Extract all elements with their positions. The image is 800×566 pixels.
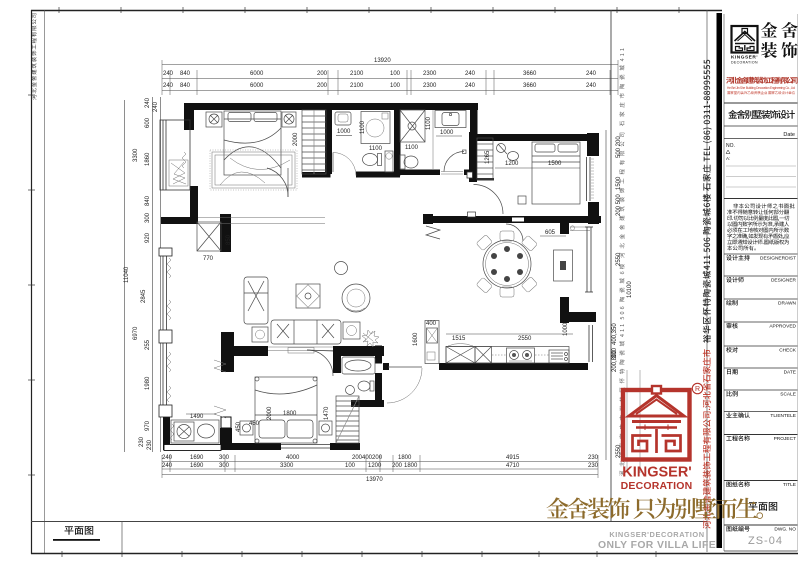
svg-text:CHECK: CHECK bbox=[779, 348, 797, 354]
svg-text:13970: 13970 bbox=[366, 477, 383, 483]
svg-text:1800: 1800 bbox=[283, 411, 297, 417]
svg-text:DRAWN: DRAWN bbox=[778, 301, 796, 307]
svg-text:1000: 1000 bbox=[440, 130, 454, 136]
svg-text:840: 840 bbox=[180, 71, 191, 77]
svg-text:1515: 1515 bbox=[452, 336, 466, 342]
svg-text:240: 240 bbox=[465, 83, 476, 89]
svg-text:2550: 2550 bbox=[518, 336, 532, 342]
svg-text:1100: 1100 bbox=[369, 146, 383, 152]
svg-text:1000: 1000 bbox=[337, 129, 351, 135]
svg-text:3300: 3300 bbox=[133, 148, 139, 162]
svg-text:ZS-04: ZS-04 bbox=[748, 535, 783, 547]
svg-text:605: 605 bbox=[545, 230, 556, 236]
svg-text:1100: 1100 bbox=[405, 145, 419, 151]
svg-text:1500: 1500 bbox=[548, 161, 562, 167]
svg-text:2000: 2000 bbox=[267, 406, 273, 420]
svg-text:DWG. NO: DWG. NO bbox=[774, 527, 796, 533]
svg-text:R: R bbox=[695, 386, 700, 393]
svg-text:200: 200 bbox=[317, 71, 328, 77]
svg-text:230: 230 bbox=[139, 436, 145, 447]
svg-text:1000: 1000 bbox=[563, 322, 569, 336]
svg-text:240: 240 bbox=[162, 455, 173, 461]
svg-text:ONLY FOR VILLA LIFE: ONLY FOR VILLA LIFE bbox=[598, 540, 716, 551]
svg-text:1600: 1600 bbox=[413, 332, 419, 346]
svg-text:100: 100 bbox=[345, 463, 356, 469]
svg-text:840: 840 bbox=[145, 195, 151, 206]
svg-text:4915: 4915 bbox=[506, 455, 520, 461]
svg-text:1200: 1200 bbox=[505, 161, 519, 167]
svg-text:1265: 1265 bbox=[485, 150, 491, 164]
svg-text:1100: 1100 bbox=[426, 116, 432, 130]
svg-text:1860: 1860 bbox=[145, 152, 151, 166]
svg-text:3660: 3660 bbox=[523, 83, 537, 89]
svg-text:255: 255 bbox=[145, 339, 151, 350]
svg-text:DECORATION: DECORATION bbox=[621, 480, 693, 492]
svg-text:300: 300 bbox=[145, 212, 151, 223]
svg-text:240: 240 bbox=[586, 83, 597, 89]
svg-text:4710: 4710 bbox=[506, 463, 520, 469]
svg-text:200: 200 bbox=[317, 83, 328, 89]
svg-text:230: 230 bbox=[147, 439, 153, 450]
svg-text:APPROVED: APPROVED bbox=[769, 324, 796, 330]
svg-text:100: 100 bbox=[390, 71, 401, 77]
svg-text:500 200: 500 200 bbox=[616, 136, 622, 158]
svg-text:13920: 13920 bbox=[374, 58, 391, 64]
svg-text:240: 240 bbox=[153, 101, 159, 112]
svg-text:2000: 2000 bbox=[293, 132, 299, 146]
svg-text:240: 240 bbox=[586, 71, 597, 77]
svg-text:DECORATION: DECORATION bbox=[731, 60, 758, 64]
svg-text:NO.: NO. bbox=[726, 143, 735, 149]
svg-text:100: 100 bbox=[390, 83, 401, 89]
svg-text:1490: 1490 bbox=[190, 414, 204, 420]
svg-text:1690: 1690 bbox=[190, 463, 204, 469]
svg-text:SCALE: SCALE bbox=[780, 392, 796, 398]
svg-text:200 500: 200 500 bbox=[616, 194, 622, 216]
svg-text:2550: 2550 bbox=[616, 252, 622, 266]
svg-text:1100: 1100 bbox=[360, 120, 366, 134]
svg-text:2300: 2300 bbox=[423, 83, 437, 89]
svg-text:200: 200 bbox=[392, 463, 403, 469]
svg-text:3660: 3660 bbox=[523, 71, 537, 77]
svg-text:300: 300 bbox=[219, 463, 230, 469]
svg-text:770: 770 bbox=[203, 256, 214, 262]
svg-text:6970: 6970 bbox=[133, 326, 139, 340]
svg-text:DATE: DATE bbox=[784, 370, 796, 376]
svg-text:920: 920 bbox=[145, 232, 151, 243]
svg-text:10100: 10100 bbox=[627, 281, 633, 298]
svg-text:2100: 2100 bbox=[350, 83, 364, 89]
svg-text:6000: 6000 bbox=[250, 71, 264, 77]
svg-text:240: 240 bbox=[162, 463, 173, 469]
svg-text:1800: 1800 bbox=[404, 463, 418, 469]
svg-text:1800: 1800 bbox=[398, 455, 412, 461]
svg-text:2300: 2300 bbox=[423, 71, 437, 77]
svg-text:230: 230 bbox=[588, 463, 599, 469]
svg-text:1470: 1470 bbox=[324, 406, 330, 420]
svg-text:240: 240 bbox=[145, 97, 151, 108]
svg-text:400: 400 bbox=[426, 321, 437, 327]
svg-text:TITLE: TITLE bbox=[783, 482, 796, 488]
svg-text:A:: A: bbox=[726, 156, 730, 161]
svg-text:840: 840 bbox=[180, 83, 191, 89]
svg-text:200,800: 200,800 bbox=[612, 350, 618, 372]
svg-text:850: 850 bbox=[226, 234, 232, 245]
svg-text:300: 300 bbox=[219, 455, 230, 461]
svg-text:450: 450 bbox=[236, 421, 242, 432]
svg-text:DESIGNER: DESIGNER bbox=[771, 278, 797, 284]
svg-text:1500: 1500 bbox=[616, 176, 622, 190]
svg-text:240: 240 bbox=[163, 71, 174, 77]
svg-text:2100: 2100 bbox=[350, 71, 364, 77]
svg-text:KINGSER'DECORATION: KINGSER'DECORATION bbox=[609, 530, 704, 539]
svg-text:1980: 1980 bbox=[145, 376, 151, 390]
svg-text:200400200: 200400200 bbox=[352, 455, 383, 461]
svg-text:3300: 3300 bbox=[280, 463, 294, 469]
svg-text:11040: 11040 bbox=[124, 266, 130, 283]
svg-text:600: 600 bbox=[145, 117, 151, 128]
svg-text:240: 240 bbox=[465, 71, 476, 77]
svg-text:400,350: 400,350 bbox=[612, 323, 618, 345]
svg-text:970: 970 bbox=[145, 420, 151, 431]
svg-text:230: 230 bbox=[588, 455, 599, 461]
svg-text:KINGSER': KINGSER' bbox=[622, 465, 692, 481]
svg-text:6000: 6000 bbox=[250, 83, 264, 89]
svg-text:PROJECT: PROJECT bbox=[774, 436, 796, 442]
svg-text:240: 240 bbox=[163, 83, 174, 89]
svg-text:450: 450 bbox=[249, 421, 260, 427]
svg-text:1690: 1690 bbox=[190, 455, 204, 461]
svg-text:4000: 4000 bbox=[286, 455, 300, 461]
svg-text:2845: 2845 bbox=[141, 289, 147, 303]
svg-text:He Bei Jin She Building Decora: He Bei Jin She Building Decoration Engin… bbox=[727, 86, 795, 90]
svg-text:DESIGNERDIST: DESIGNERDIST bbox=[760, 256, 796, 262]
svg-text:Date: Date bbox=[783, 132, 795, 138]
svg-text:TLIENTELE: TLIENTELE bbox=[770, 413, 796, 419]
